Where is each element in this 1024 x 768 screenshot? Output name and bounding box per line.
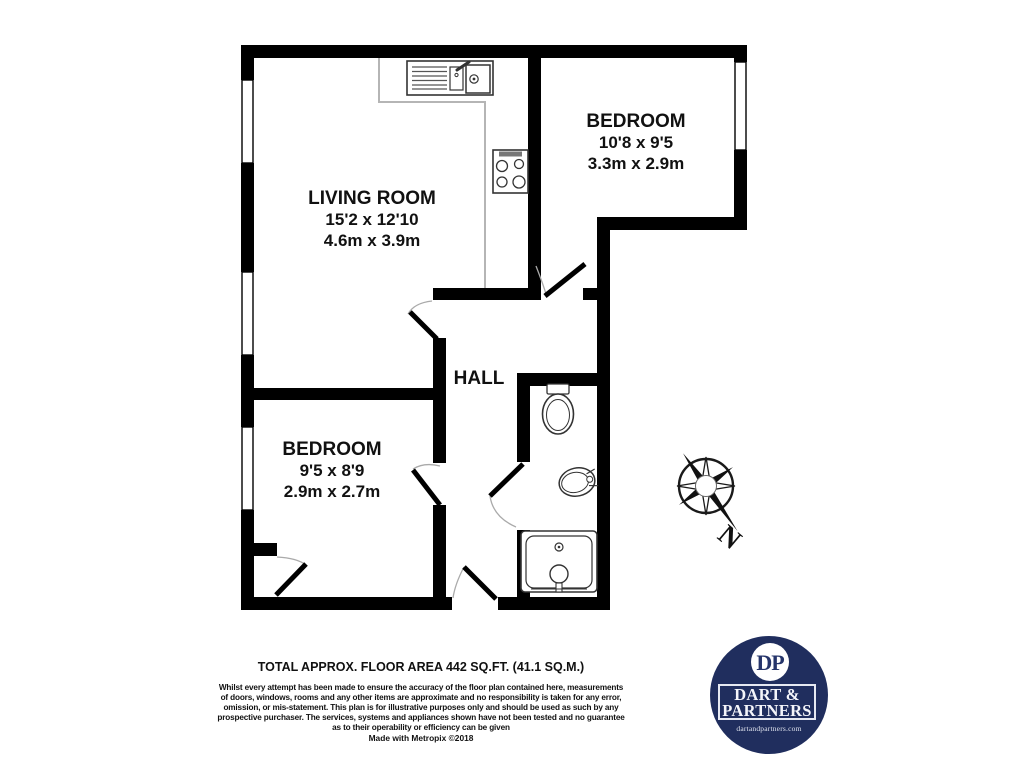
room-dimensions-imperial: 9'5 x 8'9 xyxy=(282,460,381,481)
kitchen-sink xyxy=(407,61,493,95)
room-name: BEDROOM xyxy=(586,111,685,132)
wall-segment xyxy=(254,388,446,400)
room-dimensions-imperial: 10'8 x 9'5 xyxy=(586,132,685,153)
disclaimer-line: omission, or mis-statement. This plan is… xyxy=(223,703,618,712)
wall-segment xyxy=(433,288,541,300)
wall-segment xyxy=(528,58,541,300)
room-name: BEDROOM xyxy=(282,439,381,460)
logo-website: dartandpartners.com xyxy=(710,724,828,733)
room-name: HALL xyxy=(454,368,505,389)
wall-segment xyxy=(241,355,254,427)
window-marker xyxy=(242,80,253,163)
room-label-bedroom-2: BEDROOM 9'5 x 8'9 2.9m x 2.7m xyxy=(282,439,381,502)
room-label-living-room: LIVING ROOM 15'2 x 12'10 4.6m x 3.9m xyxy=(308,188,436,251)
door-leaf xyxy=(413,470,440,505)
disclaimer-line: prospective purchaser. The services, sys… xyxy=(217,713,624,722)
window-marker xyxy=(735,62,746,150)
window-marker xyxy=(242,272,253,355)
room-dimensions-metric: 2.9m x 2.7m xyxy=(282,481,381,502)
door-arc xyxy=(277,557,306,565)
wall-segment xyxy=(498,597,610,610)
hob-control-panel xyxy=(499,152,522,157)
hob xyxy=(493,150,528,193)
disclaimer-line: as to their operability or efficiency ca… xyxy=(332,723,510,732)
room-dimensions-metric: 4.6m x 3.9m xyxy=(308,230,436,251)
agency-logo: DP DART & PARTNERS dartandpartners.com xyxy=(710,636,828,754)
door-leaf xyxy=(545,264,585,296)
north-label: N xyxy=(712,519,747,556)
bath-tap-stem xyxy=(556,583,562,592)
disclaimer-line: of doors, windows, rooms and any other i… xyxy=(221,693,622,702)
bathtub xyxy=(521,531,597,592)
toilet xyxy=(543,384,574,434)
window-marker xyxy=(242,427,253,510)
wall-segment xyxy=(517,373,530,462)
disclaimer-line: Whilst every attempt has been made to en… xyxy=(219,683,623,692)
floorplan-page: N LIVING ROOM 15'2 x 12'10 4.6m x 3.9m B… xyxy=(0,0,1024,768)
wall-segment xyxy=(241,45,747,58)
door-leaf xyxy=(276,564,306,595)
metropix-credit: Made with Metropix ©2018 xyxy=(369,733,474,743)
door-leaf xyxy=(410,312,437,339)
room-label-bedroom-1: BEDROOM 10'8 x 9'5 3.3m x 2.9m xyxy=(586,111,685,174)
wall-segment xyxy=(433,505,446,597)
total-floor-area: TOTAL APPROX. FLOOR AREA 442 SQ.FT. (41.… xyxy=(258,660,584,674)
door-arc xyxy=(490,496,516,527)
wall-segment xyxy=(583,288,597,300)
wall-segment xyxy=(734,45,747,62)
floorplan-drawing: N xyxy=(0,0,1024,768)
wall-segment xyxy=(241,597,452,610)
room-dimensions-metric: 3.3m x 2.9m xyxy=(586,153,685,174)
logo-monogram: DP xyxy=(751,643,789,681)
room-name: LIVING ROOM xyxy=(308,188,436,209)
compass-rose: N xyxy=(671,453,749,556)
wall-segment xyxy=(597,217,610,610)
room-label-hall: HALL xyxy=(454,368,505,389)
door-leaf xyxy=(490,464,523,496)
door-arc xyxy=(413,465,440,469)
washbasin xyxy=(556,464,599,499)
room-dimensions-imperial: 15'2 x 12'10 xyxy=(308,209,436,230)
wall-segment xyxy=(254,543,277,556)
wall-segment xyxy=(241,45,254,80)
wall-segment xyxy=(433,338,446,463)
logo-name-line2: PARTNERS xyxy=(720,703,814,719)
wall-segment xyxy=(241,163,254,272)
logo-name-box: DART & PARTNERS xyxy=(718,684,816,720)
wall-segment xyxy=(597,217,747,230)
door-leaf xyxy=(464,567,496,599)
wall-segment xyxy=(241,510,254,610)
door-arc xyxy=(453,567,464,598)
